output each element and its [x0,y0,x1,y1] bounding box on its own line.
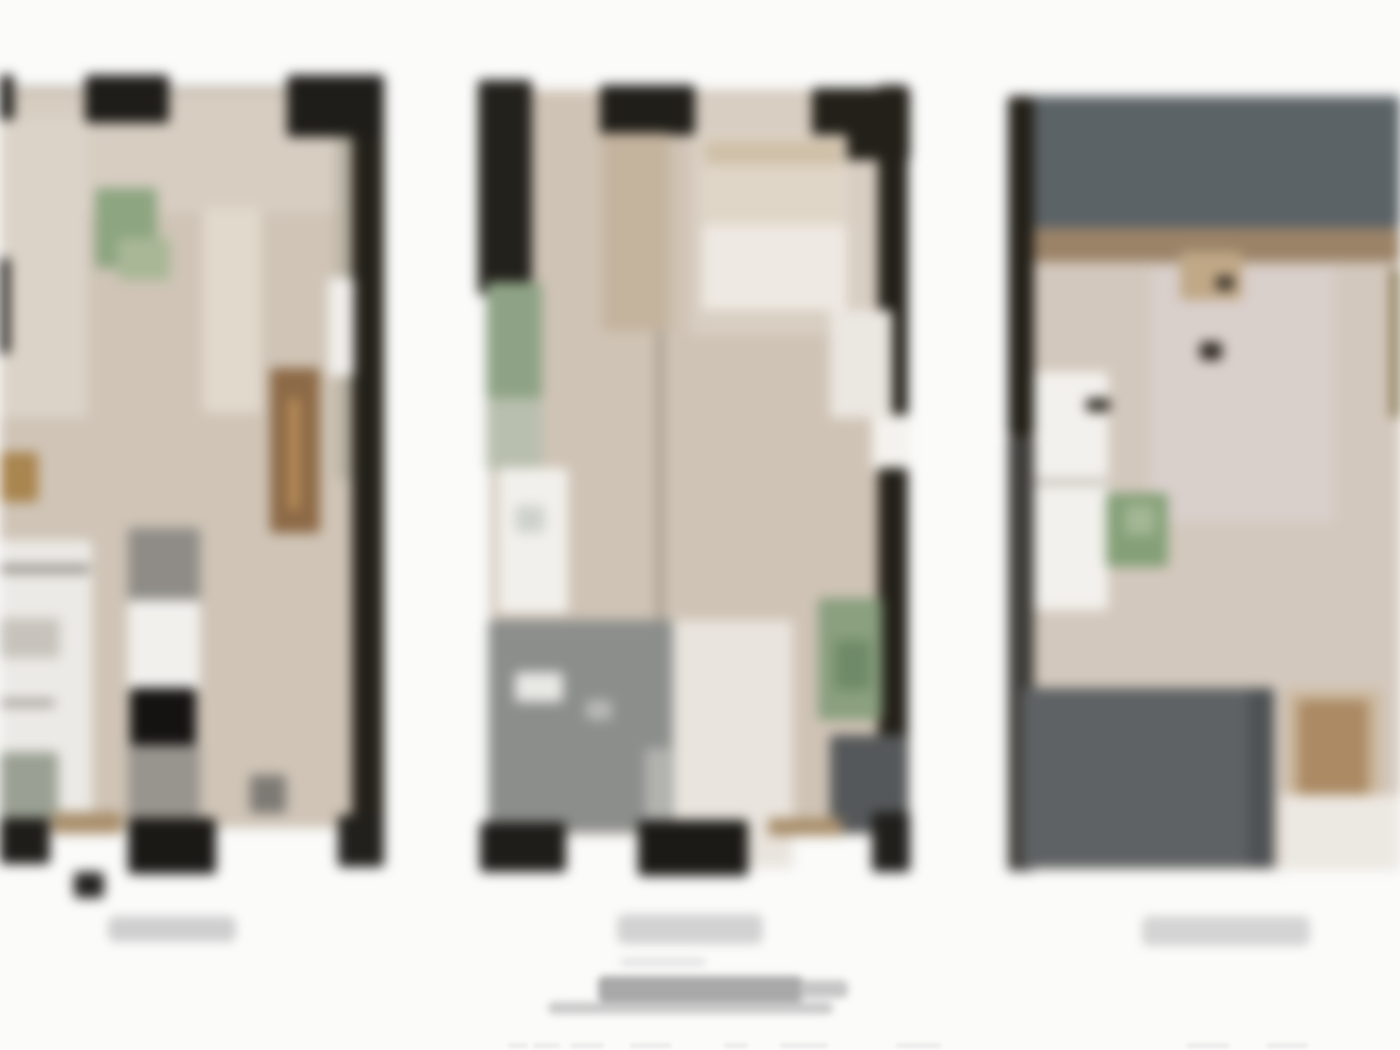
scale-mark-1 [508,1043,528,1048]
scale-mark-3 [570,1043,604,1048]
scale-mark-5 [724,1043,748,1048]
scale-mark-9 [1266,1043,1308,1048]
scale-marks-layer [0,0,1400,1050]
scale-mark-2 [533,1043,560,1048]
floorplan-sheet [0,0,1400,1050]
scale-mark-7 [896,1043,941,1048]
scale-mark-6 [780,1043,828,1048]
scale-mark-4 [630,1043,671,1048]
scale-mark-8 [1186,1043,1230,1048]
